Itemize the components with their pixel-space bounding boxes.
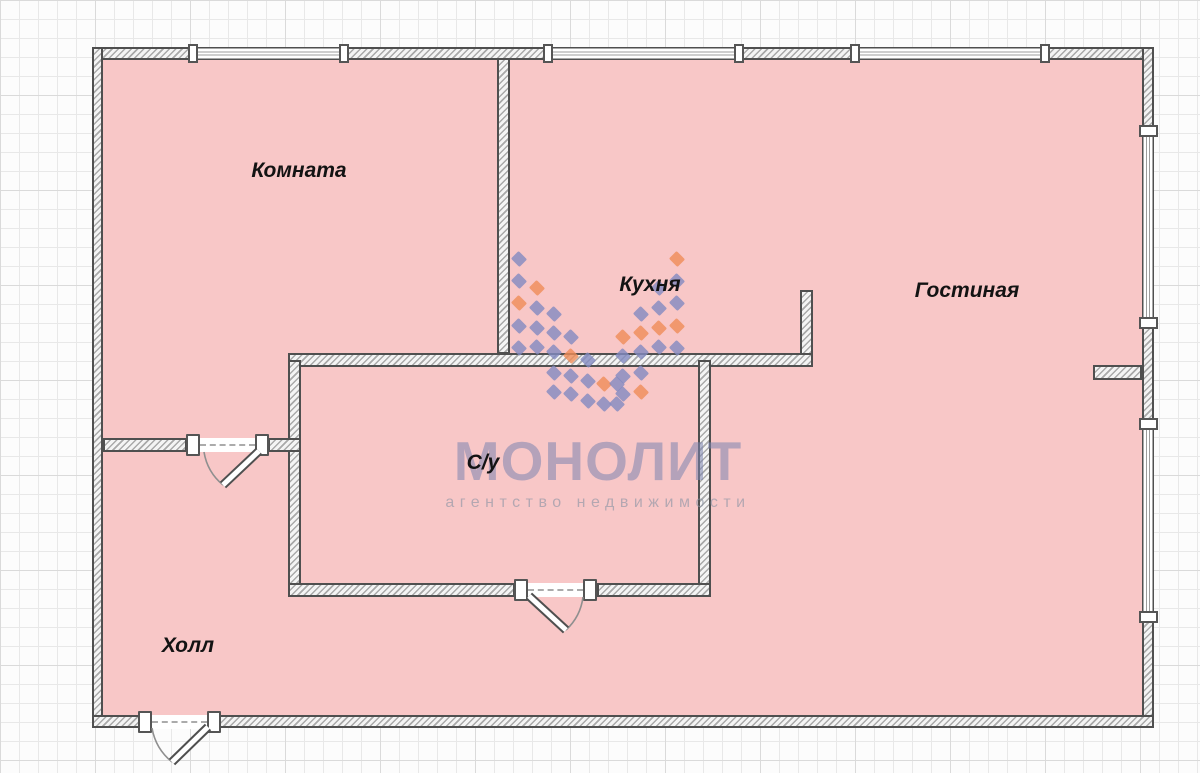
floor-plan-canvas: МОНОЛИТ агентство недвижимости КомнатаКу… bbox=[0, 0, 1200, 773]
door-arc bbox=[152, 728, 172, 762]
door-leaf-fill bbox=[223, 451, 259, 485]
door-arc bbox=[566, 597, 583, 630]
door-symbols bbox=[0, 0, 1200, 773]
door-leaf-fill bbox=[172, 727, 208, 762]
door-leaf-fill bbox=[529, 596, 566, 630]
door-arc bbox=[204, 452, 223, 485]
